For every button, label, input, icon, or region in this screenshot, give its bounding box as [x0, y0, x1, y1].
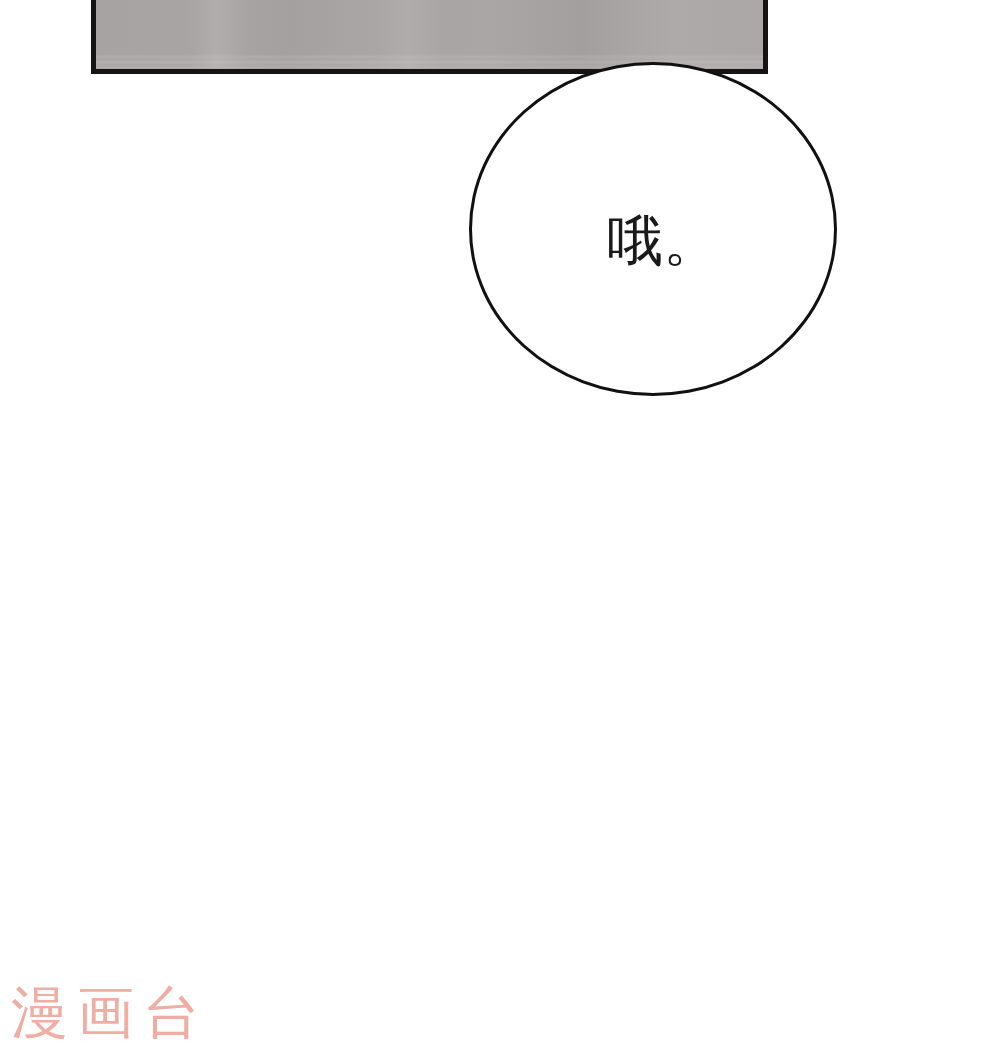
speech-bubble-text: 哦。 [607, 213, 719, 269]
comic-page: 哦。 漫画台 [0, 0, 1000, 1053]
speech-bubble: 哦。 [469, 62, 837, 396]
watermark-logo-text: 漫画台 [11, 984, 209, 1041]
